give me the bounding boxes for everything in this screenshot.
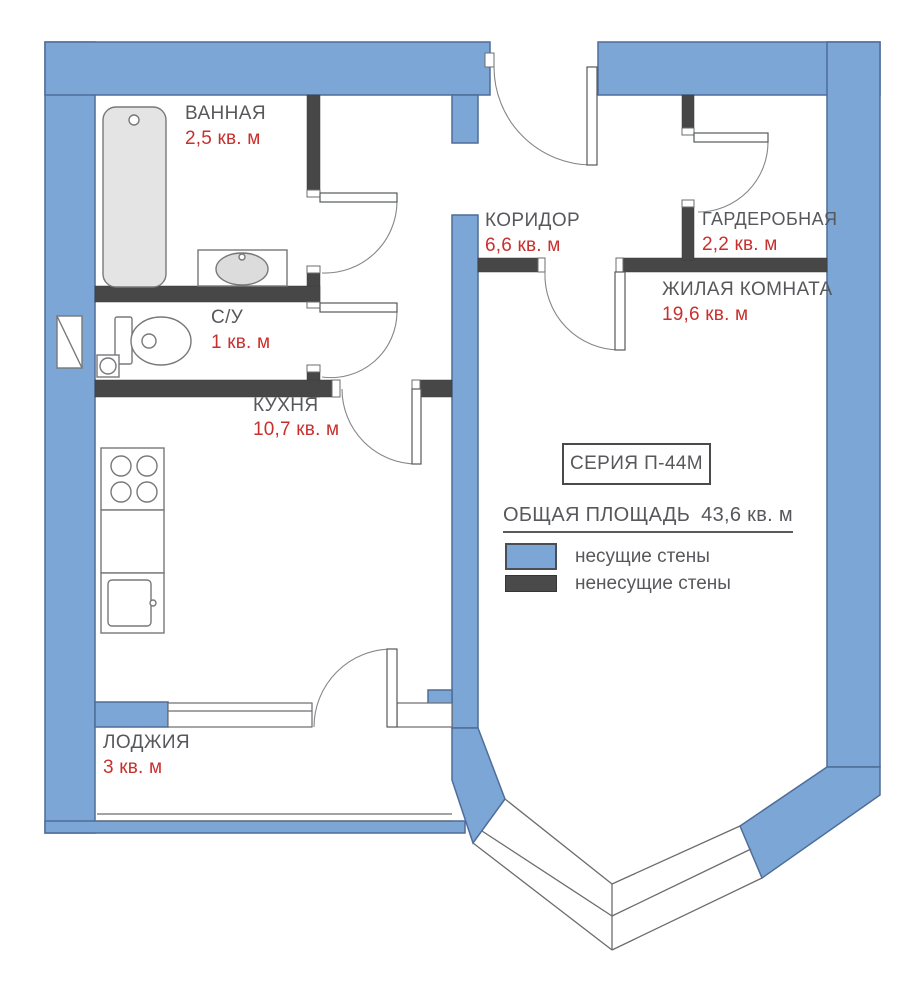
jamb-entrance xyxy=(485,53,494,67)
entrance-door-leaf xyxy=(587,67,597,165)
bay-left-inner xyxy=(505,799,612,884)
toilet-bowl xyxy=(131,317,191,365)
room-label-bathroom: ВАННАЯ xyxy=(185,104,266,123)
room-label-kitchen: КУХНЯ xyxy=(253,396,318,415)
room-label-living-room: ЖИЛАЯ КОМНАТА xyxy=(662,280,833,299)
toilet-pipe xyxy=(100,358,116,374)
bay-right-outer xyxy=(612,878,762,950)
stove-burner xyxy=(111,456,131,476)
total-area-label: ОБЩАЯ ПЛОЩАДЬ xyxy=(503,504,690,526)
jamb-bathroom-top xyxy=(307,190,320,197)
wardrobe-door-leaf xyxy=(694,133,768,142)
room-area-living-room: 19,6 кв. м xyxy=(662,305,748,324)
kitchen-loggia-window xyxy=(168,703,312,727)
doors xyxy=(314,67,768,727)
wall-right xyxy=(827,42,880,767)
series-box: СЕРИЯ П-44М xyxy=(562,443,711,485)
room-area-kitchen: 10,7 кв. м xyxy=(253,420,339,439)
jamb-bathroom-bottom xyxy=(307,266,320,273)
stove-burner xyxy=(137,456,157,476)
room-area-corridor: 6,6 кв. м xyxy=(485,236,561,255)
bathroom-door-arc xyxy=(322,202,397,273)
bay-left-outer xyxy=(473,843,612,950)
legend-label-partition: ненесущие стены xyxy=(575,574,731,593)
wall-loggia-parapet xyxy=(45,821,465,833)
jamb-toilet-bottom xyxy=(307,365,320,372)
bay-right-middle xyxy=(612,849,751,916)
jamb-living-right xyxy=(616,258,623,272)
bay-window xyxy=(473,799,762,950)
stove-burner xyxy=(137,482,157,502)
bathtub xyxy=(103,107,166,287)
partition-bathroom-toilet xyxy=(95,286,320,302)
toilet-bowl-detail xyxy=(142,334,156,348)
kitchen-loggia-sill xyxy=(397,703,452,727)
room-area-toilet: 1 кв. м xyxy=(211,333,270,352)
partition-corridor-living xyxy=(623,258,827,272)
loggia-door-leaf xyxy=(387,649,397,727)
wall-entrance-stub xyxy=(452,95,478,143)
entrance-door-arc xyxy=(494,67,592,165)
sink-faucet xyxy=(239,254,245,260)
room-area-bathroom: 2,5 кв. м xyxy=(185,129,261,148)
loggia-door-arc xyxy=(314,649,392,727)
partition-corridor-left xyxy=(478,258,538,272)
wall-bay-right xyxy=(740,767,880,878)
kitchen-counter xyxy=(101,510,164,573)
fridge-inner xyxy=(108,580,151,626)
wall-kitchen-loggia-left xyxy=(95,702,168,727)
jamb-toilet-top xyxy=(307,302,320,308)
wall-central xyxy=(452,215,478,728)
living-room-door-arc xyxy=(545,272,620,350)
floor-plan: ВАННАЯ 2,5 кв. м С/У 1 кв. м КУХНЯ 10,7 … xyxy=(0,0,924,1000)
jamb-wardrobe-bottom xyxy=(682,200,694,207)
bay-left-middle xyxy=(482,831,612,916)
wall-kitchen-loggia-arm xyxy=(428,690,452,704)
wall-top-left xyxy=(45,42,490,95)
kitchen-door-leaf xyxy=(412,389,421,464)
bathtub-drain xyxy=(129,115,139,125)
fridge-handle xyxy=(150,600,156,606)
room-label-corridor: КОРИДОР xyxy=(485,211,580,230)
living-room-door-leaf xyxy=(615,272,625,350)
toilet-door-leaf xyxy=(320,303,397,312)
total-area: ОБЩАЯ ПЛОЩАДЬ43,6 кв. м xyxy=(503,504,793,533)
partition-bathroom-right-upper xyxy=(307,95,320,190)
stove-burner xyxy=(111,482,131,502)
series-label: СЕРИЯ П-44М xyxy=(570,453,703,475)
kitchen-door-arc xyxy=(342,389,417,464)
toilet-door-arc xyxy=(322,312,397,378)
bay-right-inner xyxy=(612,826,740,884)
bathroom-door-leaf xyxy=(320,193,397,202)
room-area-wardrobe: 2,2 кв. м xyxy=(702,235,778,254)
partition-kitchen-door-stub xyxy=(420,380,452,397)
door-jambs xyxy=(304,53,694,727)
partition-wardrobe-lower xyxy=(682,207,694,260)
legend-label-load-bearing: несущие стены xyxy=(575,547,710,566)
total-area-value: 43,6 кв. м xyxy=(701,504,793,526)
room-label-wardrobe: ГАРДЕРОБНАЯ xyxy=(702,210,837,228)
jamb-living-left xyxy=(538,258,545,272)
wardrobe-door-arc xyxy=(698,142,768,212)
room-label-loggia: ЛОДЖИЯ xyxy=(103,733,190,752)
room-area-loggia: 3 кв. м xyxy=(103,758,162,777)
legend-swatch-load-bearing xyxy=(505,543,557,570)
wall-left xyxy=(45,42,95,833)
jamb-wardrobe-top xyxy=(682,128,694,135)
jamb-kitchen-left xyxy=(332,380,340,397)
stove xyxy=(101,448,164,510)
room-label-toilet: С/У xyxy=(211,308,243,327)
floor-plan-drawing xyxy=(0,0,924,1000)
legend-swatch-partition xyxy=(505,575,557,592)
